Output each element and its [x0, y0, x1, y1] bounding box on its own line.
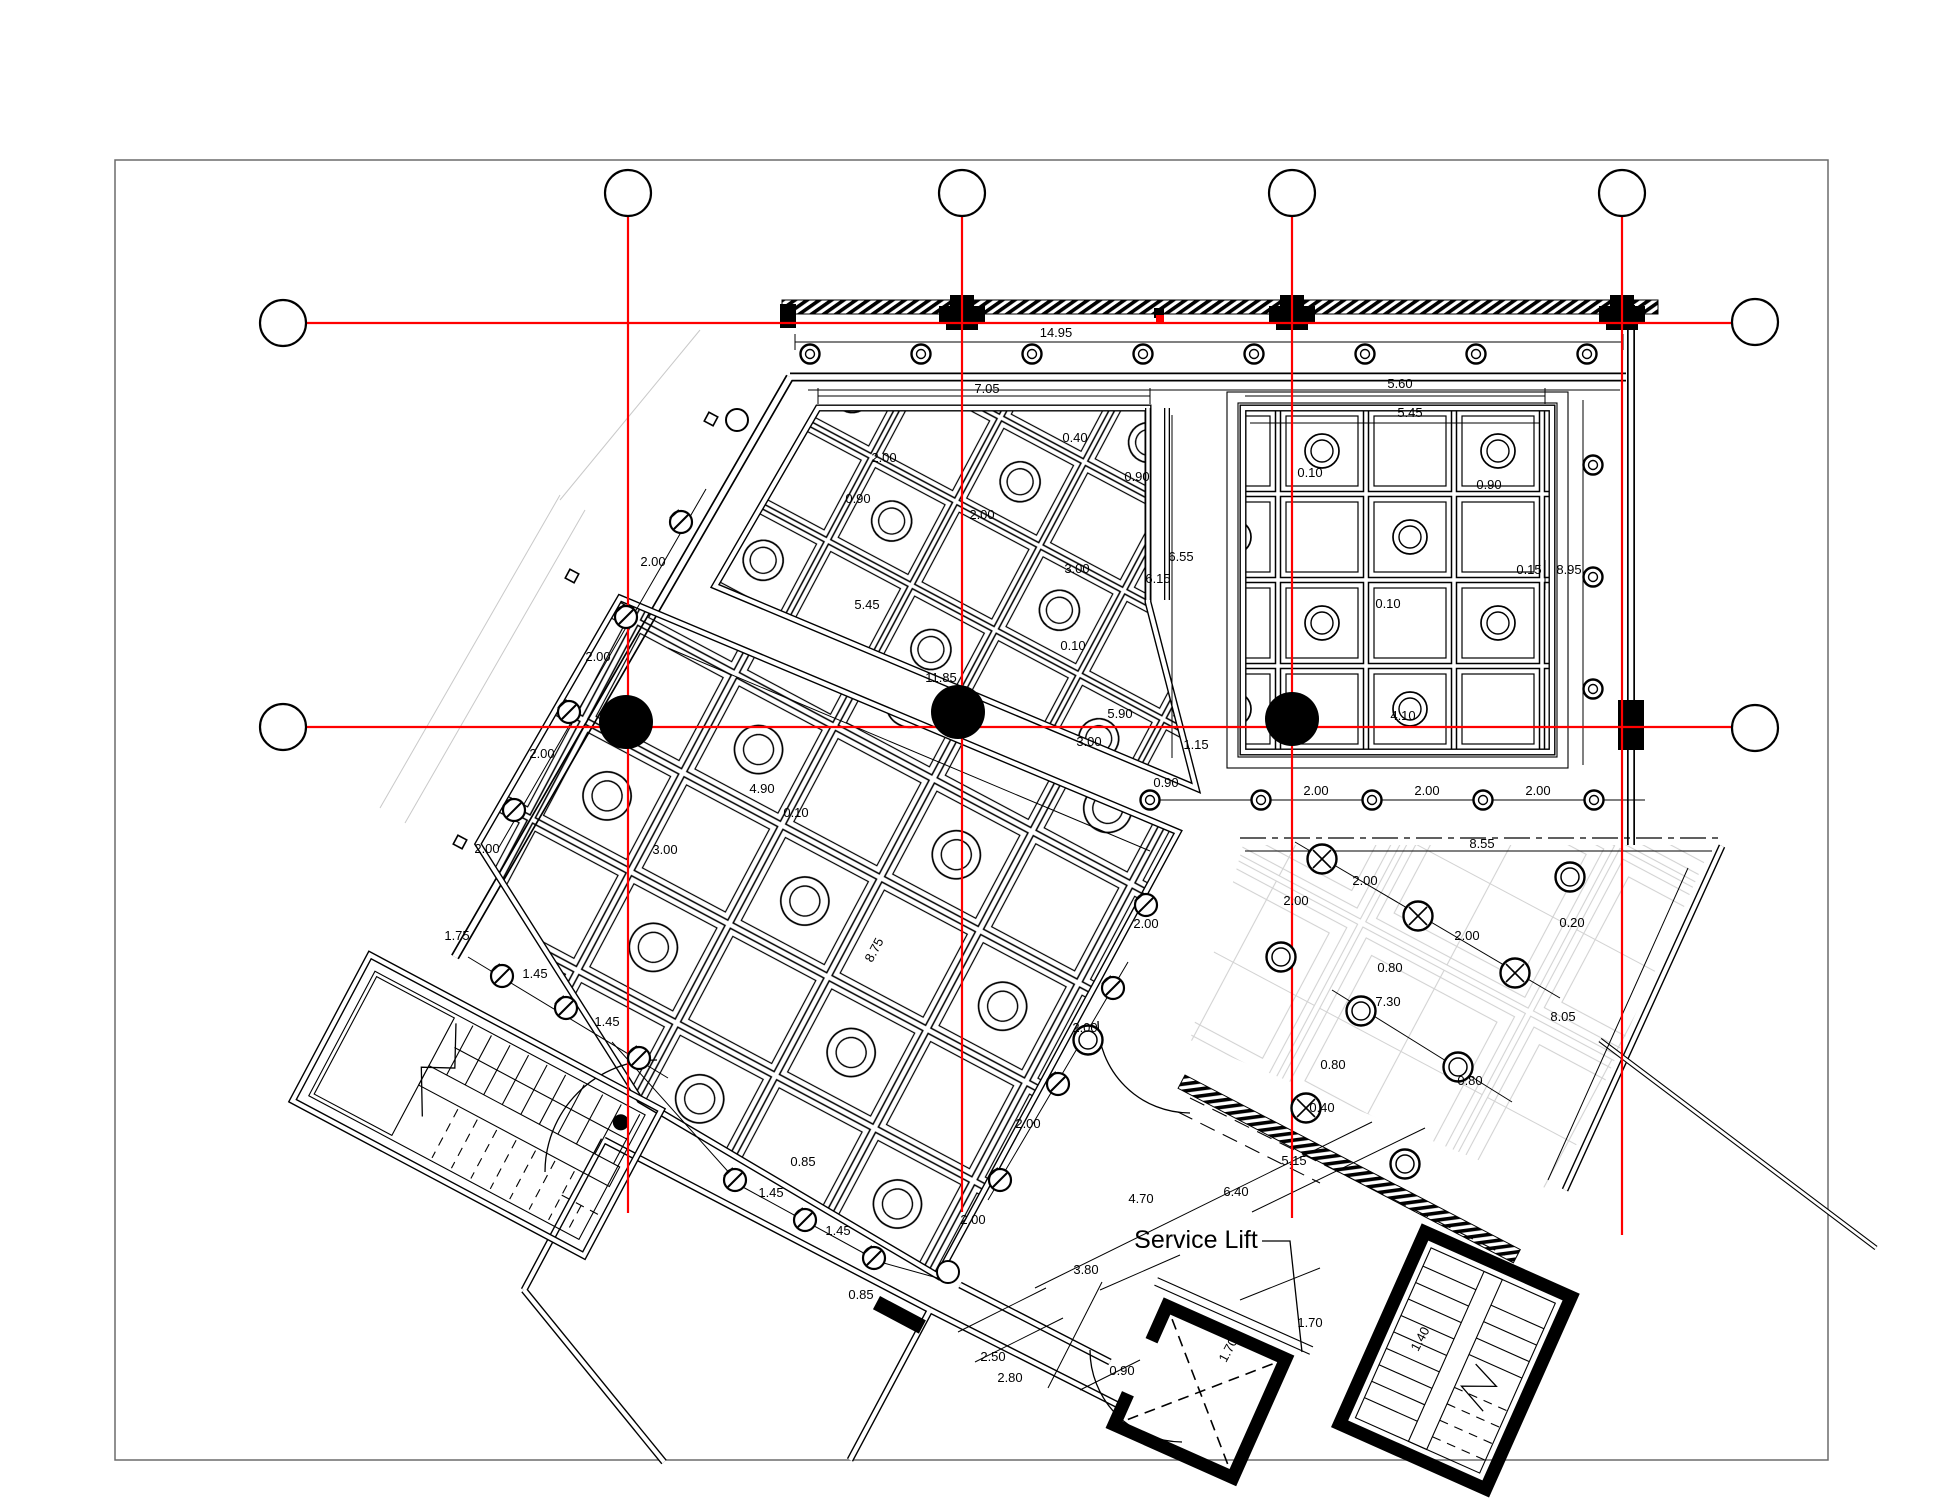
terrace-column — [1556, 863, 1585, 892]
small-circle — [1467, 345, 1486, 364]
dimension-label: 1.45 — [594, 1014, 619, 1029]
small-circle — [1134, 345, 1153, 364]
dimension-label: 11.85 — [925, 670, 957, 685]
dimension-label: 7.05 — [974, 381, 999, 396]
dimension-label: 4.70 — [1128, 1191, 1153, 1206]
small-circle — [1578, 345, 1597, 364]
column-dot — [1265, 692, 1319, 746]
dimension-label: 2.00 — [474, 841, 499, 856]
dimension-label: 0.80 — [1457, 1073, 1482, 1088]
dimension-label: 2.80 — [997, 1370, 1022, 1385]
dimension-label: 8.05 — [1550, 1009, 1575, 1024]
dimension-label: 2.00 — [969, 507, 994, 522]
grid-bubble — [260, 300, 306, 346]
dimension-label: 5.15 — [1281, 1153, 1306, 1168]
small-circle — [1584, 680, 1603, 699]
dimension-label: 0.20 — [1559, 915, 1584, 930]
dimension-label: 0.10 — [1297, 465, 1322, 480]
small-circle — [1474, 791, 1493, 810]
dimension-label: 1.45 — [522, 966, 547, 981]
dimension-label: 0.10 — [1375, 596, 1400, 611]
dimension-label: 0.90 — [845, 491, 870, 506]
small-circle — [1023, 345, 1042, 364]
dimension-label: 2.00 — [1525, 783, 1550, 798]
dimension-label: 7.30 — [1375, 994, 1400, 1009]
dimension-label: 1.45 — [825, 1223, 850, 1238]
small-circle — [801, 345, 820, 364]
dimension-label: 8.55 — [1469, 836, 1494, 851]
dimension-label: 3.80 — [1073, 1262, 1098, 1277]
dimension-label: 6.40 — [1223, 1184, 1248, 1199]
small-circle — [1356, 345, 1375, 364]
edge-symbol — [726, 409, 748, 431]
staircase-right — [1340, 1228, 1573, 1489]
dimension-label: 1.15 — [1183, 737, 1208, 752]
dimension-label: 0.90 — [1109, 1363, 1134, 1378]
floor-plan-canvas: 14.957.055.605.456.156.550.100.900.158.9… — [0, 0, 1946, 1504]
dimension-label: 2.50 — [980, 1349, 1005, 1364]
service-lift-shaft — [1096, 1278, 1313, 1486]
dimension-label: 3.00 — [1064, 561, 1089, 576]
dimension-label: 1.40 — [1407, 1324, 1432, 1353]
dimension-label: 3.00 — [1076, 734, 1101, 749]
small-circle — [912, 345, 931, 364]
small-circle — [1585, 791, 1604, 810]
dimension-label: 0.85 — [848, 1287, 873, 1302]
dimension-label: 2.00 — [960, 1212, 985, 1227]
dimension-label: 0.80 — [1320, 1057, 1345, 1072]
dimension-label: 5.90 — [1107, 706, 1132, 721]
dimension-label: 0.80 — [1377, 960, 1402, 975]
tiny-square — [453, 835, 467, 849]
dimension-label: 1.70 — [1297, 1315, 1322, 1330]
grid-bubble — [1732, 705, 1778, 751]
dimension-label: 4.10 — [1390, 708, 1415, 723]
small-circle — [1584, 568, 1603, 587]
dimension-label: 2.00 — [1072, 1020, 1097, 1035]
axis-marker — [1156, 315, 1164, 323]
column-dot — [931, 685, 985, 739]
dimension-label: 0.10 — [1060, 638, 1085, 653]
dimension-label: 0.40 — [1309, 1100, 1334, 1115]
small-circle — [1245, 345, 1264, 364]
dimension-label: 2.00 — [1015, 1116, 1040, 1131]
dimension-label: 1.45 — [758, 1185, 783, 1200]
terrace-column — [1267, 943, 1296, 972]
dimension-label: 4.90 — [749, 781, 774, 796]
terrace-column — [1347, 997, 1376, 1026]
dimension-label: 0.15 — [1516, 562, 1541, 577]
tiny-square — [565, 569, 579, 583]
dimension-label: 0.40 — [1062, 430, 1087, 445]
dimension-label: 6.55 — [1168, 549, 1193, 564]
dimension-label: 6.15 — [1145, 571, 1170, 586]
grid-bubble — [1269, 170, 1315, 216]
column-dot — [599, 695, 653, 749]
service-lift-label: Service Lift — [1134, 1226, 1258, 1254]
small-circle — [1584, 456, 1603, 475]
dimension-label: 0.85 — [790, 1154, 815, 1169]
tiny-square — [704, 412, 718, 426]
dimension-label: 2.00 — [1454, 928, 1479, 943]
dimension-label: 5.60 — [1387, 376, 1412, 391]
dimension-label: 2.00 — [871, 450, 896, 465]
terrace-column — [1391, 1150, 1420, 1179]
dimension-label: 5.45 — [1397, 405, 1422, 420]
dimension-label: 2.00 — [640, 554, 665, 569]
edge-symbol — [937, 1261, 959, 1283]
small-circle — [1363, 791, 1382, 810]
dimension-label: 1.75 — [444, 928, 469, 943]
dimension-label: 3.00 — [652, 842, 677, 857]
dimension-label: 2.00 — [1133, 916, 1158, 931]
small-circle — [1252, 791, 1271, 810]
small-circle — [1141, 791, 1160, 810]
dimension-label: 0.90 — [1153, 775, 1178, 790]
dimension-label: 0.90 — [1476, 477, 1501, 492]
dimension-label: 2.00 — [529, 746, 554, 761]
grid-bubble — [260, 704, 306, 750]
grid-bubble — [1732, 299, 1778, 345]
dimension-label: 0.90 — [1124, 469, 1149, 484]
dimension-label: 2.00 — [1303, 783, 1328, 798]
dimension-label: 5.45 — [854, 597, 879, 612]
floor-plan-drawing: 14.957.055.605.456.156.550.100.900.158.9… — [0, 0, 1946, 1504]
dimension-label: 2.00 — [1414, 783, 1439, 798]
dimension-label: 2.00 — [585, 649, 610, 664]
dimension-label: 8.95 — [1556, 562, 1581, 577]
grid-bubble — [939, 170, 985, 216]
dimension-label: 2.00 — [1283, 893, 1308, 908]
dimension-label: 2.00 — [1352, 873, 1377, 888]
dimension-label: 0.10 — [783, 805, 808, 820]
grid-bubble — [605, 170, 651, 216]
dimension-label: 14.95 — [1040, 325, 1073, 340]
grid-bubble — [1599, 170, 1645, 216]
